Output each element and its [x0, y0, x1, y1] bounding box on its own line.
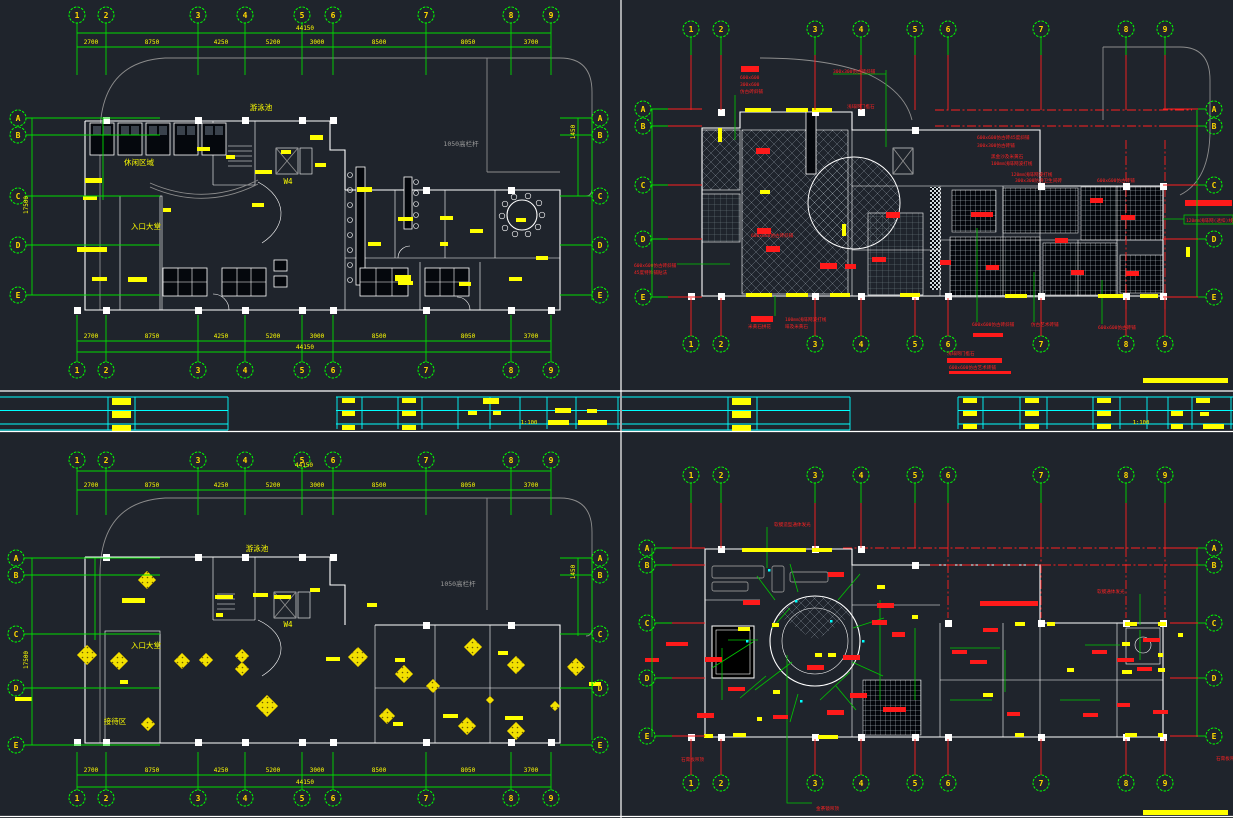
- grid-bubble-col: 2: [713, 21, 729, 110]
- svg-text:9: 9: [549, 456, 554, 465]
- red-annotation-text: 啡及米黄石: [785, 323, 808, 330]
- masked-title-text: [732, 411, 751, 418]
- highlight-bars-br[interactable]: [704, 548, 1183, 739]
- highlight-bar[interactable]: [828, 653, 836, 657]
- ceiling-diamonds: [77, 571, 585, 740]
- grid-bubble-row: E: [560, 737, 608, 753]
- room-label: 休闲区域: [124, 157, 154, 167]
- railing-label: 1050高栏杆: [443, 139, 479, 148]
- svg-text:C: C: [14, 630, 19, 639]
- cad-viewport[interactable]: 600x600300x600仿古砖斜铺300x300仿古砖斜铺浅啡网门槛石600…: [0, 0, 1233, 818]
- svg-text:E: E: [598, 741, 603, 750]
- dim-text: 8750: [145, 482, 160, 489]
- highlight-bar[interactable]: [281, 150, 291, 154]
- column-square: [945, 734, 952, 741]
- highlight-bar[interactable]: [509, 277, 522, 281]
- red-annotation-text: 软膜造型通体发光: [774, 521, 811, 528]
- vert-dim: 17500: [23, 196, 30, 214]
- ceiling-diamond: [256, 695, 278, 717]
- red-annotation-text: 仿古艺术砖铺: [1031, 321, 1059, 328]
- red-annotation-text: 300x600: [740, 82, 760, 88]
- highlight-bar[interactable]: [1158, 733, 1163, 737]
- ceiling-lights-cyan: [746, 569, 865, 703]
- cad-canvas[interactable]: 600x600300x600仿古砖斜铺300x300仿古砖斜铺浅啡网门槛石600…: [0, 0, 1233, 818]
- column-square: [103, 554, 110, 561]
- svg-text:8: 8: [509, 456, 514, 465]
- highlight-bar[interactable]: [85, 178, 102, 183]
- red-annotation-bar: [947, 358, 1002, 363]
- red-annotation-text: 600x600: [740, 75, 760, 81]
- masked-title-text: [963, 411, 977, 416]
- svg-text:7: 7: [424, 366, 429, 375]
- highlight-bar[interactable]: [216, 613, 223, 617]
- shaft-2: [300, 148, 312, 174]
- grid-bubble-row: E: [8, 737, 160, 753]
- room-label: 入口大堂: [131, 640, 161, 650]
- svg-text:C: C: [1212, 619, 1217, 628]
- grid-bubble-row: D: [1163, 231, 1222, 247]
- grid-bubble-col: 5: [907, 467, 923, 548]
- column-square: [195, 307, 202, 314]
- grid-bubble-col: 4: [853, 739, 869, 791]
- ceiling-diamond: [567, 658, 585, 676]
- highlight-bar[interactable]: [818, 735, 838, 739]
- highlight-bar[interactable]: [745, 108, 771, 112]
- svg-text:2: 2: [719, 779, 724, 788]
- svg-text:5: 5: [300, 11, 305, 20]
- svg-text:6: 6: [331, 11, 336, 20]
- room-label: 入口大堂: [131, 221, 161, 231]
- grid-bubble-col: 3: [190, 452, 206, 515]
- ceiling-diamond: [379, 708, 395, 724]
- grid-bubble-col: 2: [98, 452, 114, 515]
- column-square: [858, 293, 865, 300]
- ceiling-diamond: [507, 722, 525, 740]
- svg-text:5: 5: [913, 25, 918, 34]
- svg-text:6: 6: [946, 25, 951, 34]
- svg-text:7: 7: [424, 456, 429, 465]
- grid-bubble-col: 9: [1157, 467, 1173, 548]
- red-annotation-bar: [773, 715, 788, 719]
- highlight-bar[interactable]: [877, 585, 885, 589]
- grid-bubble-col: 8: [1118, 298, 1134, 352]
- dim-text: 5200: [266, 482, 281, 489]
- masked-title-text: [548, 420, 569, 425]
- left-annex: [120, 196, 162, 310]
- masked-title-text: [342, 425, 355, 430]
- svg-text:B: B: [598, 571, 603, 580]
- gray-labels-tl: 1050高栏杆: [443, 139, 479, 148]
- highlight-bar[interactable]: [83, 196, 97, 200]
- highlight-bar[interactable]: [226, 155, 235, 159]
- reception-counter: [150, 180, 258, 198]
- column-square: [299, 307, 306, 314]
- red-annotation-bar: [1090, 198, 1103, 203]
- grid-bubble-col: 9: [1157, 298, 1173, 352]
- pool-railing: [487, 58, 560, 172]
- svg-text:8: 8: [1124, 779, 1129, 788]
- svg-text:1: 1: [75, 366, 80, 375]
- highlight-bar[interactable]: [395, 658, 405, 662]
- sheet-bottom-left-ceiling-plan[interactable]: [77, 498, 592, 743]
- grid-bubble-row: C: [639, 615, 705, 631]
- elevator-x: [893, 148, 913, 174]
- highlight-bar[interactable]: [128, 277, 147, 282]
- masked-title-text: [402, 398, 416, 403]
- grid-bubble-col: 8: [503, 452, 519, 515]
- highlight-bar[interactable]: [215, 595, 233, 599]
- svg-text:C: C: [598, 630, 603, 639]
- column-square: [858, 546, 865, 553]
- dim-text: 8050: [461, 767, 476, 774]
- highlight-bar[interactable]: [773, 690, 780, 694]
- highlight-bar[interactable]: [746, 293, 772, 297]
- highlight-bar[interactable]: [738, 627, 750, 631]
- red-annotation-bar: [1092, 650, 1107, 654]
- red-annotation-bar: [973, 333, 1003, 337]
- svg-text:D: D: [645, 674, 650, 683]
- grid-bubble-row: C: [560, 626, 608, 642]
- svg-text:E: E: [645, 732, 650, 741]
- highlight-bar[interactable]: [1098, 294, 1123, 298]
- svg-text:A: A: [641, 105, 646, 114]
- highlight-bar[interactable]: [1122, 642, 1130, 646]
- highlight-bar[interactable]: [1005, 294, 1027, 298]
- grid-bubble-row: B: [560, 567, 608, 583]
- dim-text: 3700: [524, 767, 539, 774]
- red-annotation-bar: [877, 603, 894, 608]
- svg-text:7: 7: [1039, 471, 1044, 480]
- grid-bubble-col: 5: [907, 298, 923, 352]
- grid-bubble-col: 6: [325, 752, 341, 806]
- grid-bubble-row: D: [8, 680, 160, 696]
- grid-bubble-col: 2: [98, 7, 114, 75]
- grid-bubble-row: E: [635, 289, 702, 305]
- red-annotation-text: 石膏板吊顶: [681, 756, 704, 763]
- grid-bubble-col: 3: [807, 21, 823, 110]
- highlight-bar[interactable]: [733, 733, 746, 737]
- red-annotation-text: 120mm浅啡网(透扣)线: [1186, 217, 1233, 224]
- svg-text:6: 6: [946, 340, 951, 349]
- column-square: [330, 554, 337, 561]
- svg-text:2: 2: [104, 11, 109, 20]
- highlight-bar[interactable]: [1158, 668, 1165, 672]
- highlight-bar[interactable]: [983, 693, 993, 697]
- highlight-bar[interactable]: [197, 147, 210, 151]
- sheet-top-left-furniture-plan[interactable]: [85, 58, 592, 310]
- highlight-bar[interactable]: [398, 281, 413, 285]
- highlight-bar[interactable]: [757, 717, 762, 721]
- highlight-bar[interactable]: [1067, 668, 1074, 672]
- column-square: [812, 734, 819, 741]
- masked-title-text: [1025, 398, 1039, 403]
- grid-rows-tl-right: A B C D E: [560, 110, 608, 303]
- svg-text:4: 4: [243, 794, 248, 803]
- grid-bubble-col: 7: [418, 7, 434, 75]
- highlight-bar[interactable]: [470, 229, 483, 233]
- svg-text:B: B: [14, 571, 19, 580]
- dim-text: 2700: [84, 333, 99, 340]
- svg-text:A: A: [598, 554, 603, 563]
- grid-bubble-row: C: [560, 188, 608, 204]
- red-annotation-bar: [949, 371, 1011, 374]
- grid-bubble-row: A: [1163, 101, 1222, 117]
- dim-text: 8050: [461, 333, 476, 340]
- svg-text:6: 6: [331, 794, 336, 803]
- highlight-bar[interactable]: [1140, 294, 1158, 298]
- grid-bubble-col: 8: [1118, 467, 1134, 548]
- highlight-bar[interactable]: [1047, 622, 1055, 626]
- site-boundary: [100, 498, 592, 743]
- dims-tl-bottom: 27008750425052003000850080503700: [84, 333, 539, 340]
- highlight-bar[interactable]: [398, 217, 413, 221]
- red-annotation-bar: [940, 260, 951, 265]
- highlight-bar[interactable]: [786, 108, 808, 112]
- masked-title-text: [963, 424, 977, 429]
- grid-rows-br-right: A B C D E: [1170, 540, 1222, 744]
- svg-text:C: C: [641, 181, 646, 190]
- svg-text:3: 3: [196, 794, 201, 803]
- column-square: [330, 117, 337, 124]
- grid-bubble-col: 6: [325, 452, 341, 515]
- vert-dim: 1450: [570, 564, 577, 579]
- grid-bubble-col: 6: [940, 467, 956, 548]
- highlight-bar[interactable]: [326, 657, 340, 661]
- grid-bubble-col: 3: [190, 752, 206, 806]
- svg-text:3: 3: [813, 779, 818, 788]
- highlight-bar[interactable]: [1015, 622, 1025, 626]
- light-dot: [746, 640, 749, 643]
- svg-text:8: 8: [1124, 25, 1129, 34]
- highlight-bar[interactable]: [393, 722, 403, 726]
- highlight-bar[interactable]: [443, 714, 458, 718]
- highlight-bar[interactable]: [760, 190, 770, 194]
- grid-bubble-col: 3: [190, 7, 206, 75]
- ceiling-diamond: [426, 679, 440, 693]
- highlight-bar[interactable]: [900, 293, 920, 297]
- column-square: [858, 109, 865, 116]
- highlight-bar[interactable]: [1178, 633, 1183, 637]
- svg-text:B: B: [1212, 122, 1217, 131]
- red-annotation-text: 600x600仿古砖铺: [1098, 324, 1136, 331]
- highlight-bar[interactable]: [830, 293, 850, 297]
- grid-rows-bl-right: A B C D E: [560, 550, 608, 753]
- red-annotation-bar: [843, 655, 860, 660]
- highlight-bar[interactable]: [498, 651, 508, 655]
- column-square: [1038, 734, 1045, 741]
- highlight-bar[interactable]: [252, 203, 264, 207]
- highlight-bars-bl[interactable]: [15, 588, 601, 726]
- masked-title-text: [732, 398, 751, 405]
- grid-bubble-row: D: [639, 670, 705, 686]
- grid-bubble-col: 1: [683, 739, 699, 791]
- highlight-bar[interactable]: [315, 163, 326, 167]
- svg-text:6: 6: [946, 779, 951, 788]
- red-annotation-bar: [845, 264, 856, 269]
- svg-text:2: 2: [104, 366, 109, 375]
- svg-text:4: 4: [859, 779, 864, 788]
- dim-text: 8500: [372, 767, 387, 774]
- svg-text:1: 1: [689, 471, 694, 480]
- svg-text:B: B: [641, 122, 646, 131]
- highlight-bar[interactable]: [440, 216, 453, 220]
- red-annotation-text: 600x600仿古砖斜铺: [634, 262, 677, 269]
- highlight-bar[interactable]: [812, 548, 832, 552]
- grid-bubble-col: 2: [98, 752, 114, 806]
- svg-text:E: E: [14, 741, 19, 750]
- column-square: [242, 554, 249, 561]
- highlight-bar[interactable]: [772, 623, 779, 627]
- highlight-bar[interactable]: [1186, 247, 1190, 257]
- highlight-bar[interactable]: [395, 275, 411, 281]
- svg-text:3: 3: [196, 366, 201, 375]
- highlight-bar[interactable]: [1158, 622, 1166, 626]
- red-annotation-bar: [970, 660, 987, 664]
- column-square: [508, 307, 515, 314]
- svg-text:9: 9: [1163, 25, 1168, 34]
- highlight-bar[interactable]: [368, 242, 381, 246]
- highlight-bar[interactable]: [253, 593, 268, 597]
- highlight-bar[interactable]: [516, 218, 526, 222]
- svg-text:D: D: [16, 241, 21, 250]
- grid-bubble-row: E: [639, 728, 705, 744]
- highlight-bar[interactable]: [1158, 653, 1163, 657]
- masked-title-text: [468, 411, 477, 415]
- grid-bubble-row: A: [560, 110, 608, 126]
- highlight-bar[interactable]: [440, 242, 448, 246]
- highlight-bar[interactable]: [92, 277, 107, 281]
- lobby-desk: [806, 112, 816, 174]
- room-hatch-2: [702, 194, 740, 242]
- column-square: [718, 546, 725, 553]
- dim-text: 4250: [214, 39, 229, 46]
- checker-strip: [930, 187, 941, 290]
- walls-inner: [85, 557, 560, 743]
- red-annotation-bar: [1143, 638, 1160, 642]
- masked-title-text: [402, 411, 416, 416]
- grid-bubble-row: D: [635, 231, 702, 247]
- grid-bubble-row: B: [560, 127, 608, 143]
- highlight-bar[interactable]: [357, 187, 372, 192]
- column-square: [242, 307, 249, 314]
- column-square: [1038, 620, 1045, 627]
- red-annotation-text: 600x600仿古艺术砖铺: [949, 364, 996, 371]
- grid-bubble-row: B: [1170, 557, 1222, 573]
- highlight-bar[interactable]: [77, 247, 107, 252]
- water-feature: [712, 626, 754, 678]
- sheet-top-right-floor-plan[interactable]: [677, 47, 1233, 383]
- column-square: [1123, 183, 1130, 190]
- column-square: [718, 293, 725, 300]
- column-square: [912, 562, 919, 569]
- column-square: [945, 293, 952, 300]
- grid-bubble-col: 4: [237, 315, 253, 378]
- column-square: [299, 739, 306, 746]
- highlight-bar[interactable]: [310, 135, 323, 140]
- highlight-bar[interactable]: [459, 282, 471, 286]
- highlight-bar[interactable]: [912, 615, 918, 619]
- highlight-bar[interactable]: [1122, 670, 1132, 674]
- grid-bubble-col: 7: [418, 452, 434, 515]
- highlight-bar[interactable]: [1125, 733, 1137, 737]
- svg-text:6: 6: [331, 366, 336, 375]
- total-dim: 44150: [296, 344, 314, 351]
- highlight-bar[interactable]: [255, 170, 272, 174]
- grid-bubble-col: 3: [807, 467, 823, 548]
- highlight-bar[interactable]: [704, 734, 713, 738]
- ceiling-diamond: [199, 653, 213, 667]
- highlight-bar[interactable]: [718, 128, 722, 142]
- svg-text:2: 2: [719, 340, 724, 349]
- grid-cols-br-bottom: 1 2 3 4 5 6 7 8: [683, 739, 1173, 791]
- dim-text: 2700: [84, 482, 99, 489]
- svg-text:E: E: [16, 291, 21, 300]
- red-annotation-bar: [705, 657, 722, 662]
- highlight-bar[interactable]: [786, 293, 808, 297]
- dim-text: 5200: [266, 767, 281, 774]
- highlight-bar[interactable]: [1015, 733, 1024, 737]
- dims-tl-top: 27008750425052003000850080503700: [84, 39, 539, 46]
- column-square: [548, 307, 555, 314]
- svg-text:9: 9: [549, 794, 554, 803]
- red-annotation-bar: [751, 316, 773, 322]
- dim-text: 3000: [310, 39, 325, 46]
- svg-text:8: 8: [1124, 340, 1129, 349]
- highlight-bar[interactable]: [274, 595, 291, 599]
- light-dot: [795, 600, 798, 603]
- red-annotation-bar: [820, 263, 837, 269]
- highlight-bar[interactable]: [742, 548, 806, 552]
- circle-hatch: [778, 596, 852, 641]
- dim-text: 8500: [372, 333, 387, 340]
- grid-bubble-row: A: [8, 550, 160, 566]
- red-annotation-bar: [1126, 271, 1139, 276]
- svg-text:8: 8: [1124, 471, 1129, 480]
- svg-text:D: D: [14, 684, 19, 693]
- ceiling-diamond: [141, 717, 155, 731]
- red-annotation-bar: [952, 650, 967, 654]
- highlight-bar[interactable]: [310, 588, 320, 592]
- highlight-bar[interactable]: [1125, 622, 1137, 626]
- grid-bubble-col: 9: [543, 752, 559, 806]
- svg-text:3: 3: [196, 456, 201, 465]
- svg-text:1: 1: [689, 779, 694, 788]
- highlight-bar[interactable]: [120, 680, 128, 684]
- masked-title-text: [1171, 424, 1183, 429]
- highlight-bar[interactable]: [122, 598, 145, 603]
- highlight-bar[interactable]: [15, 697, 32, 701]
- column-square: [330, 307, 337, 314]
- column-square: [812, 293, 819, 300]
- red-annotation-bar: [1117, 703, 1130, 707]
- highlight-bar[interactable]: [367, 603, 377, 607]
- dim-text: 5200: [266, 333, 281, 340]
- svg-text:9: 9: [1163, 779, 1168, 788]
- highlight-bar[interactable]: [815, 653, 822, 657]
- red-annotation-text: 600x600仿古砖铺: [1097, 177, 1135, 184]
- highlight-bar[interactable]: [842, 224, 846, 236]
- red-annotation-bar: [1121, 215, 1135, 220]
- grid-bubble-col: 2: [713, 739, 729, 791]
- svg-text:C: C: [598, 192, 603, 201]
- highlight-bar[interactable]: [505, 716, 523, 720]
- grid-bubble-col: 3: [807, 298, 823, 352]
- svg-text:C: C: [1212, 181, 1217, 190]
- highlight-bar[interactable]: [536, 256, 548, 260]
- entry-curve: [760, 58, 912, 120]
- highlight-bar[interactable]: [163, 208, 171, 212]
- svg-text:7: 7: [1039, 25, 1044, 34]
